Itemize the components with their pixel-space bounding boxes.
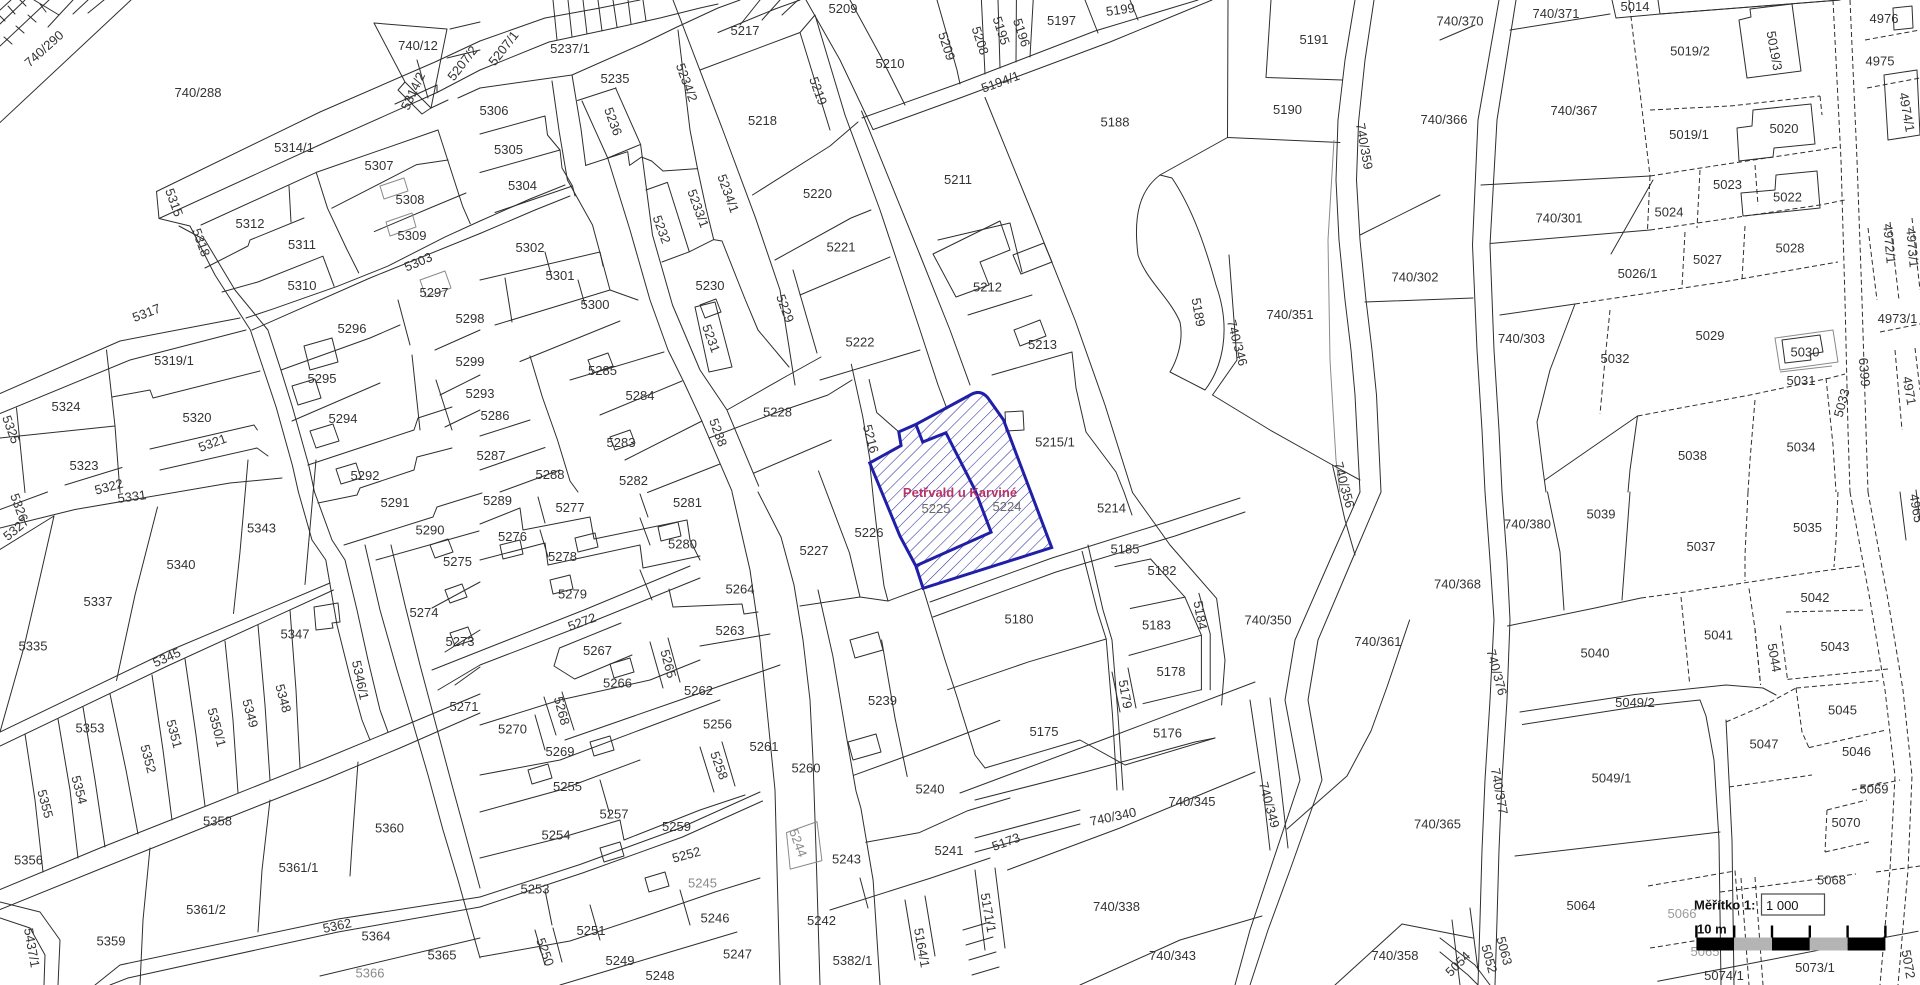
svg-text:5245: 5245 — [688, 876, 717, 891]
svg-text:5190: 5190 — [1273, 102, 1302, 117]
svg-text:5026/1: 5026/1 — [1618, 266, 1658, 281]
svg-text:5299: 5299 — [456, 354, 485, 369]
svg-text:5306: 5306 — [480, 103, 509, 118]
svg-text:5261: 5261 — [750, 739, 779, 754]
svg-text:5218: 5218 — [748, 113, 777, 128]
svg-text:5247: 5247 — [723, 947, 752, 962]
svg-text:5049/2: 5049/2 — [1615, 695, 1655, 710]
svg-text:740/370: 740/370 — [1437, 14, 1484, 29]
svg-text:5361/2: 5361/2 — [186, 902, 226, 917]
svg-text:5251: 5251 — [577, 923, 606, 938]
svg-text:5037: 5037 — [1687, 539, 1716, 554]
svg-text:5031: 5031 — [1787, 373, 1816, 388]
svg-text:740/367: 740/367 — [1551, 103, 1598, 118]
svg-text:5281: 5281 — [673, 495, 702, 510]
svg-text:5294: 5294 — [329, 411, 358, 426]
svg-text:740/345: 740/345 — [1169, 794, 1216, 809]
svg-text:5032: 5032 — [1601, 351, 1630, 366]
svg-text:5353: 5353 — [76, 721, 105, 736]
svg-text:1 000: 1 000 — [1766, 898, 1799, 913]
svg-text:4975: 4975 — [1866, 54, 1895, 69]
svg-text:5284: 5284 — [626, 388, 655, 403]
svg-text:5227: 5227 — [800, 543, 829, 558]
svg-text:740/338: 740/338 — [1093, 899, 1140, 914]
svg-text:5289: 5289 — [483, 493, 512, 508]
svg-text:740/351: 740/351 — [1267, 307, 1314, 322]
svg-text:5027: 5027 — [1693, 252, 1722, 267]
svg-text:5214: 5214 — [1097, 501, 1126, 516]
svg-text:740/288: 740/288 — [175, 85, 222, 100]
svg-text:5239: 5239 — [868, 693, 897, 708]
svg-text:5275: 5275 — [443, 554, 472, 569]
svg-text:5185: 5185 — [1111, 542, 1140, 557]
svg-text:5240: 5240 — [916, 782, 945, 797]
svg-text:740/301: 740/301 — [1536, 211, 1583, 226]
svg-text:5310: 5310 — [288, 278, 317, 293]
svg-text:5273: 5273 — [446, 634, 475, 649]
svg-text:5256: 5256 — [703, 717, 732, 732]
svg-text:5182: 5182 — [1148, 563, 1177, 578]
svg-text:5308: 5308 — [396, 192, 425, 207]
svg-text:5235: 5235 — [601, 71, 630, 86]
svg-text:740/350: 740/350 — [1245, 613, 1292, 628]
svg-text:Petřvald u Karviné: Petřvald u Karviné — [903, 485, 1017, 500]
svg-text:5069: 5069 — [1860, 782, 1889, 797]
svg-text:5278: 5278 — [548, 549, 577, 564]
svg-text:5230: 5230 — [696, 278, 725, 293]
svg-text:5248: 5248 — [646, 968, 675, 983]
svg-text:Měřítko 1:: Měřítko 1: — [1694, 898, 1755, 913]
svg-text:5225: 5225 — [922, 501, 951, 516]
svg-text:5243: 5243 — [832, 852, 861, 867]
svg-text:5188: 5188 — [1101, 115, 1130, 130]
svg-text:5213: 5213 — [1028, 337, 1057, 352]
svg-text:5034: 5034 — [1787, 440, 1816, 455]
svg-text:5364: 5364 — [362, 929, 391, 944]
svg-text:5070: 5070 — [1832, 815, 1861, 830]
svg-text:5270: 5270 — [498, 722, 527, 737]
svg-text:6399: 6399 — [1856, 357, 1873, 387]
svg-text:10 m: 10 m — [1697, 922, 1727, 937]
svg-text:5343: 5343 — [247, 521, 276, 536]
svg-text:740/12: 740/12 — [398, 38, 438, 53]
svg-text:5320: 5320 — [183, 410, 212, 425]
svg-text:5309: 5309 — [398, 228, 427, 243]
svg-text:5215/1: 5215/1 — [1035, 435, 1075, 450]
svg-text:5039: 5039 — [1587, 507, 1616, 522]
svg-text:5180: 5180 — [1005, 612, 1034, 627]
svg-text:5019/2: 5019/2 — [1670, 44, 1710, 59]
svg-text:5262: 5262 — [684, 683, 713, 698]
svg-text:5020: 5020 — [1770, 121, 1799, 136]
svg-text:5359: 5359 — [97, 934, 126, 949]
svg-text:5049/1: 5049/1 — [1592, 771, 1632, 786]
svg-text:5314/1: 5314/1 — [274, 140, 314, 155]
svg-text:5259: 5259 — [662, 819, 691, 834]
svg-text:5311: 5311 — [288, 237, 316, 252]
svg-text:5246: 5246 — [701, 911, 730, 926]
svg-text:5274: 5274 — [410, 605, 439, 620]
svg-text:5282: 5282 — [619, 473, 648, 488]
svg-text:5030: 5030 — [1791, 345, 1820, 360]
svg-text:5210: 5210 — [876, 56, 905, 71]
svg-text:5175: 5175 — [1030, 724, 1059, 739]
svg-text:5280: 5280 — [668, 537, 697, 552]
svg-text:5242: 5242 — [807, 913, 836, 928]
svg-text:5271: 5271 — [450, 699, 479, 714]
svg-text:740/366: 740/366 — [1421, 112, 1468, 127]
svg-text:740/358: 740/358 — [1372, 948, 1419, 963]
svg-text:5269: 5269 — [546, 744, 575, 759]
svg-text:5045: 5045 — [1828, 703, 1857, 718]
svg-text:5279: 5279 — [558, 587, 587, 602]
svg-text:5217: 5217 — [731, 23, 760, 38]
svg-text:740/371: 740/371 — [1533, 6, 1580, 21]
svg-text:5241: 5241 — [935, 843, 964, 858]
svg-text:5312: 5312 — [236, 216, 265, 231]
svg-text:5358: 5358 — [203, 814, 232, 829]
svg-text:5292: 5292 — [351, 468, 380, 483]
svg-text:5307: 5307 — [365, 158, 394, 173]
svg-text:4976: 4976 — [1870, 11, 1899, 26]
svg-text:5249: 5249 — [606, 953, 635, 968]
svg-text:740/302: 740/302 — [1392, 270, 1439, 285]
svg-text:5191: 5191 — [1300, 32, 1329, 47]
svg-text:5365: 5365 — [428, 948, 457, 963]
svg-text:740/380: 740/380 — [1504, 517, 1551, 532]
svg-text:5222: 5222 — [846, 335, 875, 350]
svg-text:5366: 5366 — [356, 966, 385, 981]
svg-text:5300: 5300 — [581, 297, 610, 312]
svg-text:5212: 5212 — [973, 280, 1002, 295]
svg-text:5038: 5038 — [1678, 448, 1707, 463]
svg-text:5285: 5285 — [588, 363, 617, 378]
svg-text:5253: 5253 — [521, 882, 550, 897]
svg-text:5361/1: 5361/1 — [279, 860, 319, 875]
svg-text:5290: 5290 — [416, 523, 445, 538]
svg-text:5035: 5035 — [1793, 520, 1822, 535]
svg-text:5176: 5176 — [1153, 726, 1182, 741]
svg-text:5382/1: 5382/1 — [833, 953, 873, 968]
svg-text:5074/1: 5074/1 — [1704, 968, 1744, 983]
svg-text:740/303: 740/303 — [1498, 331, 1545, 346]
svg-text:5260: 5260 — [792, 761, 821, 776]
svg-text:5335: 5335 — [19, 639, 48, 654]
svg-text:5014: 5014 — [1621, 0, 1650, 14]
svg-text:5023: 5023 — [1713, 177, 1742, 192]
svg-text:5047: 5047 — [1750, 737, 1779, 752]
svg-text:5255: 5255 — [553, 779, 582, 794]
svg-text:5323: 5323 — [70, 458, 99, 473]
svg-text:5040: 5040 — [1581, 646, 1610, 661]
svg-text:5304: 5304 — [508, 178, 537, 193]
svg-text:5296: 5296 — [338, 321, 367, 336]
svg-text:5286: 5286 — [481, 408, 510, 423]
svg-text:5209: 5209 — [829, 1, 858, 16]
svg-text:5178: 5178 — [1157, 664, 1186, 679]
svg-text:5319/1: 5319/1 — [154, 353, 194, 368]
svg-text:5356: 5356 — [14, 853, 43, 868]
svg-text:5266: 5266 — [603, 676, 632, 691]
svg-text:5257: 5257 — [600, 807, 629, 822]
svg-text:5288: 5288 — [536, 467, 565, 482]
svg-text:5041: 5041 — [1704, 628, 1733, 643]
svg-text:5301: 5301 — [546, 268, 575, 283]
svg-text:5043: 5043 — [1821, 639, 1850, 654]
svg-text:5028: 5028 — [1776, 241, 1805, 256]
svg-text:4973/1: 4973/1 — [1878, 311, 1918, 326]
svg-text:5197: 5197 — [1047, 13, 1076, 28]
svg-text:5291: 5291 — [381, 495, 410, 510]
svg-text:5264: 5264 — [726, 582, 755, 597]
svg-text:740/368: 740/368 — [1434, 577, 1481, 592]
svg-text:5340: 5340 — [167, 557, 196, 572]
svg-text:5066: 5066 — [1668, 906, 1697, 921]
svg-text:5068: 5068 — [1817, 873, 1846, 888]
svg-text:5267: 5267 — [583, 643, 612, 658]
svg-text:5221: 5221 — [827, 240, 856, 255]
svg-text:5293: 5293 — [466, 386, 495, 401]
svg-text:740/343: 740/343 — [1149, 948, 1196, 963]
svg-text:5073/1: 5073/1 — [1795, 960, 1835, 975]
svg-text:5211: 5211 — [944, 172, 972, 187]
svg-text:5347: 5347 — [281, 627, 310, 642]
svg-text:5302: 5302 — [516, 240, 545, 255]
svg-text:5228: 5228 — [763, 405, 792, 420]
svg-text:5042: 5042 — [1801, 590, 1830, 605]
svg-text:5360: 5360 — [375, 821, 404, 836]
svg-text:740/365: 740/365 — [1414, 817, 1461, 832]
svg-text:5220: 5220 — [803, 186, 832, 201]
svg-text:5024: 5024 — [1655, 205, 1684, 220]
svg-text:5263: 5263 — [716, 623, 745, 638]
svg-text:5183: 5183 — [1142, 618, 1171, 633]
svg-text:5277: 5277 — [556, 500, 585, 515]
svg-text:5224: 5224 — [993, 499, 1022, 514]
svg-text:5254: 5254 — [542, 828, 571, 843]
svg-text:5283: 5283 — [607, 435, 636, 450]
svg-text:5287: 5287 — [477, 448, 506, 463]
svg-text:5298: 5298 — [456, 311, 485, 326]
svg-text:5226: 5226 — [855, 525, 884, 540]
svg-text:5324: 5324 — [52, 399, 81, 414]
svg-text:5029: 5029 — [1696, 328, 1725, 343]
svg-text:5297: 5297 — [420, 285, 449, 300]
svg-text:740/361: 740/361 — [1355, 634, 1402, 649]
svg-text:5064: 5064 — [1567, 898, 1596, 913]
svg-text:5276: 5276 — [498, 529, 527, 544]
svg-text:5305: 5305 — [494, 142, 523, 157]
svg-text:5046: 5046 — [1842, 744, 1871, 759]
svg-text:5237/1: 5237/1 — [550, 41, 590, 56]
svg-text:5295: 5295 — [308, 371, 337, 386]
svg-text:5022: 5022 — [1773, 190, 1802, 205]
svg-text:5019/1: 5019/1 — [1669, 127, 1709, 142]
svg-text:5337: 5337 — [84, 594, 113, 609]
